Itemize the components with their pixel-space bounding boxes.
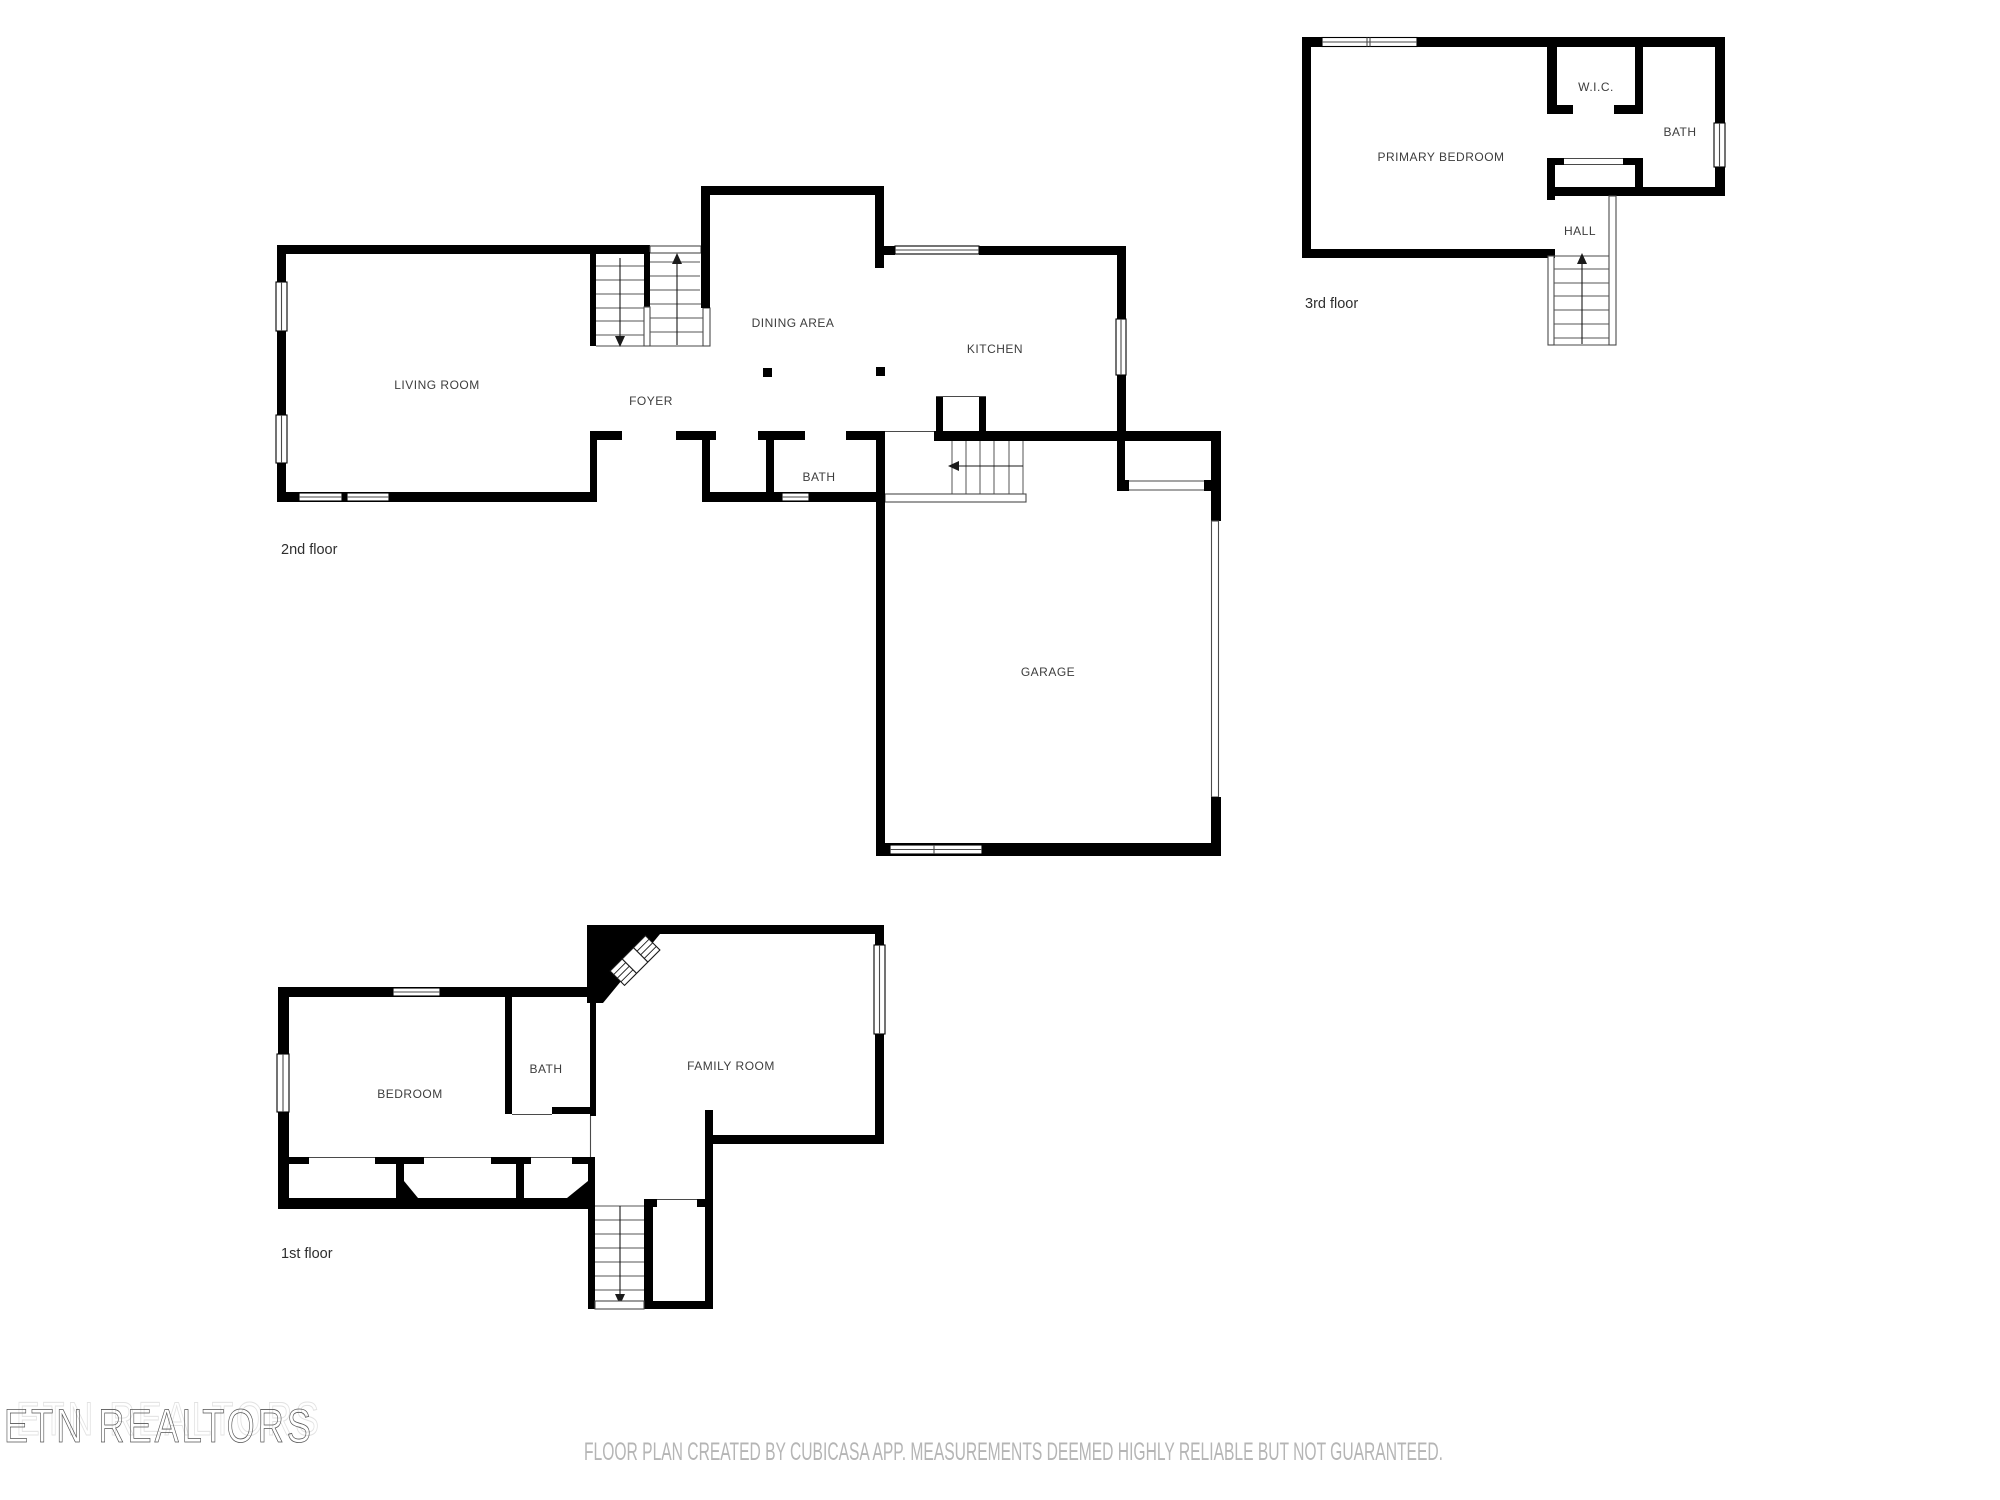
svg-text:HALL: HALL (1564, 224, 1596, 238)
svg-text:BATH: BATH (529, 1062, 562, 1076)
svg-text:KITCHEN: KITCHEN (967, 342, 1023, 356)
svg-text:2nd floor: 2nd floor (281, 542, 338, 558)
svg-text:FAMILY ROOM: FAMILY ROOM (687, 1059, 775, 1073)
svg-text:ETN REALTORS: ETN REALTORS (4, 1399, 314, 1452)
svg-text:BATH: BATH (1663, 125, 1696, 139)
svg-text:3rd floor: 3rd floor (1305, 296, 1358, 312)
svg-text:PRIMARY BEDROOM: PRIMARY BEDROOM (1377, 150, 1504, 164)
svg-text:LIVING ROOM: LIVING ROOM (394, 378, 480, 392)
svg-text:1st floor: 1st floor (281, 1246, 333, 1262)
svg-text:BEDROOM: BEDROOM (377, 1087, 443, 1101)
svg-text:BATH: BATH (802, 470, 835, 484)
svg-text:FOYER: FOYER (629, 394, 673, 408)
svg-text:FLOOR PLAN CREATED BY CUBICASA: FLOOR PLAN CREATED BY CUBICASA APP. MEAS… (584, 1438, 1443, 1466)
svg-text:DINING AREA: DINING AREA (752, 316, 835, 330)
svg-text:W.I.C.: W.I.C. (1578, 80, 1614, 94)
svg-text:GARAGE: GARAGE (1021, 665, 1075, 679)
